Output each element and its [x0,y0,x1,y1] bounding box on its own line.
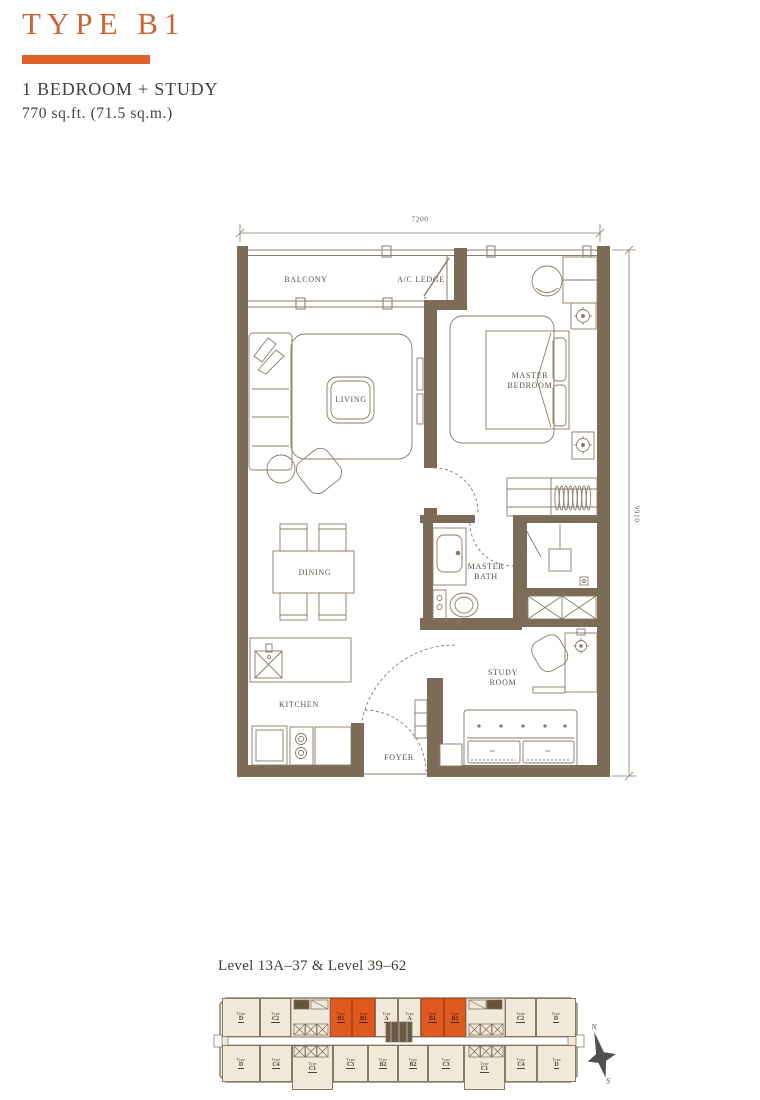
keyplan-unit-c1: TypeC1 [292,1045,333,1090]
floorplan-graphic [0,0,760,1100]
keyplan-unit-c3: TypeC3 [333,1045,368,1082]
keyplan-unit-b1-highlighted: TypeB1 [330,998,352,1037]
dimension-height: 9910 [633,506,642,523]
brochure-page: TYPE B1 1 BEDROOM + STUDY 770 sq.ft. (71… [0,0,760,1100]
furniture [249,257,597,767]
compass-north-label: N [591,1023,596,1032]
compass-icon [581,1028,621,1081]
lamp-icon [574,436,592,454]
keyplan-unit-b2: TypeB2 [368,1045,398,1082]
windows [248,246,597,774]
room-label-master-bedroom: MASTER BEDROOM [498,371,562,391]
keyplan-unit-b1-highlighted: TypeB1 [352,998,375,1037]
keyplan-unit-c2: TypeC2 [260,998,291,1037]
keyplan-unit-c4: TypeC4 [505,1045,537,1082]
keyplan-unit-b2: TypeB2 [398,1045,428,1082]
keyplan-unit-a: TypeA [398,998,421,1037]
compass-south-label: S [606,1077,610,1086]
room-label-foyer: FOYER [384,753,414,763]
dimension-width: 7200 [412,215,429,224]
room-label-master-bath: MASTER BATH [461,562,511,582]
room-label-kitchen: KITCHEN [279,700,319,710]
keyplan-unit-b1-highlighted: TypeB1 [444,998,466,1037]
room-label-ac-ledge: A/C LEDGE [397,275,445,285]
keyplan-unit-a: TypeA [375,998,398,1037]
keyplan-unit-c1: TypeC1 [464,1045,505,1090]
keyplan-unit-c4: TypeC4 [260,1045,292,1082]
keyplan-unit-b1-highlighted: TypeB1 [421,998,444,1037]
room-label-living: LIVING [335,395,367,405]
lamp-icon [574,307,592,325]
keyplan-unit-d: TypeD [222,998,260,1037]
room-label-study-room: STUDY ROOM [480,668,526,688]
keyplan-unit-d: TypeD [222,1045,260,1082]
keyplan-unit-c3: TypeC3 [428,1045,464,1082]
keyplan-unit-c2: TypeC2 [505,998,536,1037]
keyplan-unit-d: TypeD [536,998,576,1037]
keyplan-title: Level 13A–37 & Level 39–62 [218,958,407,975]
keyplan-unit-d: TypeD [537,1045,576,1082]
room-label-balcony: BALCONY [284,275,328,285]
room-label-dining: DINING [299,568,332,578]
